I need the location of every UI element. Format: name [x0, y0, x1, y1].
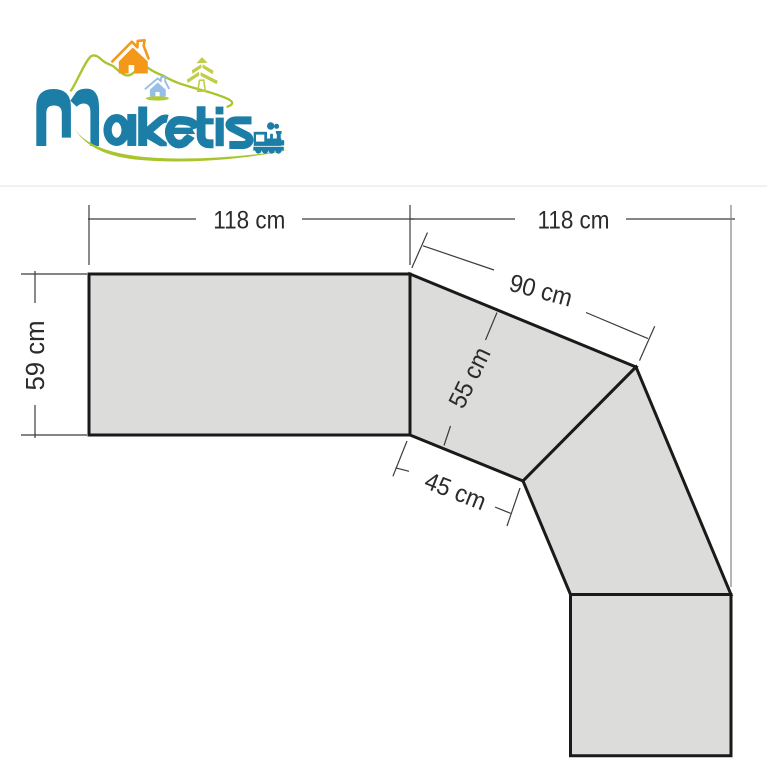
svg-text:59 cm: 59 cm — [22, 321, 50, 391]
svg-text:118 cm: 118 cm — [213, 207, 285, 235]
svg-text:118 cm: 118 cm — [538, 207, 610, 235]
